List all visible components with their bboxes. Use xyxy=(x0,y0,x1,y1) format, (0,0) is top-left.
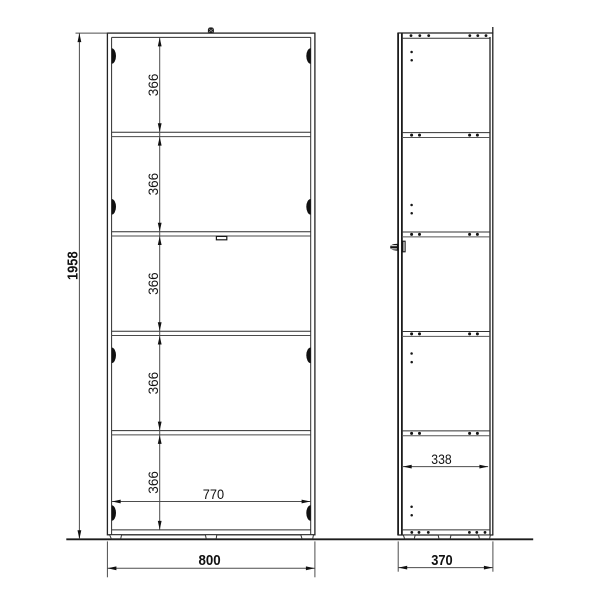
svg-text:366: 366 xyxy=(146,74,161,97)
svg-text:800: 800 xyxy=(199,552,221,569)
svg-text:338: 338 xyxy=(431,452,451,467)
svg-text:370: 370 xyxy=(431,552,452,569)
svg-text:366: 366 xyxy=(146,471,161,494)
svg-text:366: 366 xyxy=(146,372,161,395)
svg-text:366: 366 xyxy=(146,173,161,196)
svg-text:1958: 1958 xyxy=(65,251,82,280)
svg-text:366: 366 xyxy=(146,272,161,295)
svg-text:770: 770 xyxy=(203,487,224,502)
